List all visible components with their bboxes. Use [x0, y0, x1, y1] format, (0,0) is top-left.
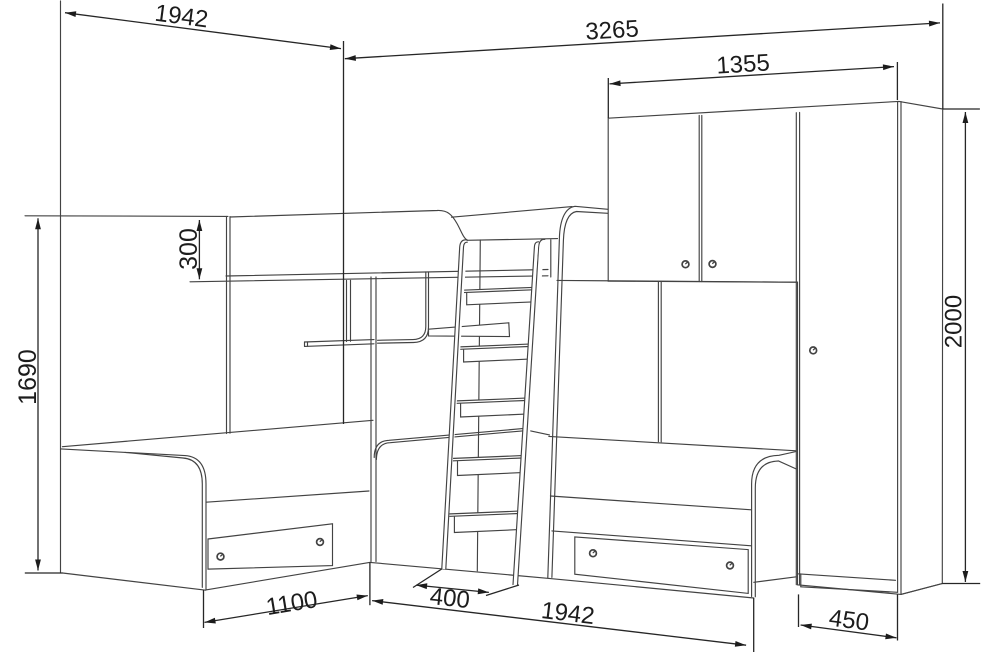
svg-text:1942: 1942	[540, 597, 596, 630]
svg-text:1100: 1100	[264, 586, 319, 621]
svg-text:450: 450	[827, 605, 870, 637]
svg-text:1942: 1942	[153, 0, 209, 33]
svg-text:400: 400	[428, 583, 471, 614]
svg-text:1690: 1690	[14, 349, 42, 405]
svg-text:1355: 1355	[716, 49, 771, 79]
svg-text:300: 300	[175, 228, 203, 270]
svg-text:2000: 2000	[941, 295, 968, 348]
svg-text:3265: 3265	[585, 15, 640, 45]
